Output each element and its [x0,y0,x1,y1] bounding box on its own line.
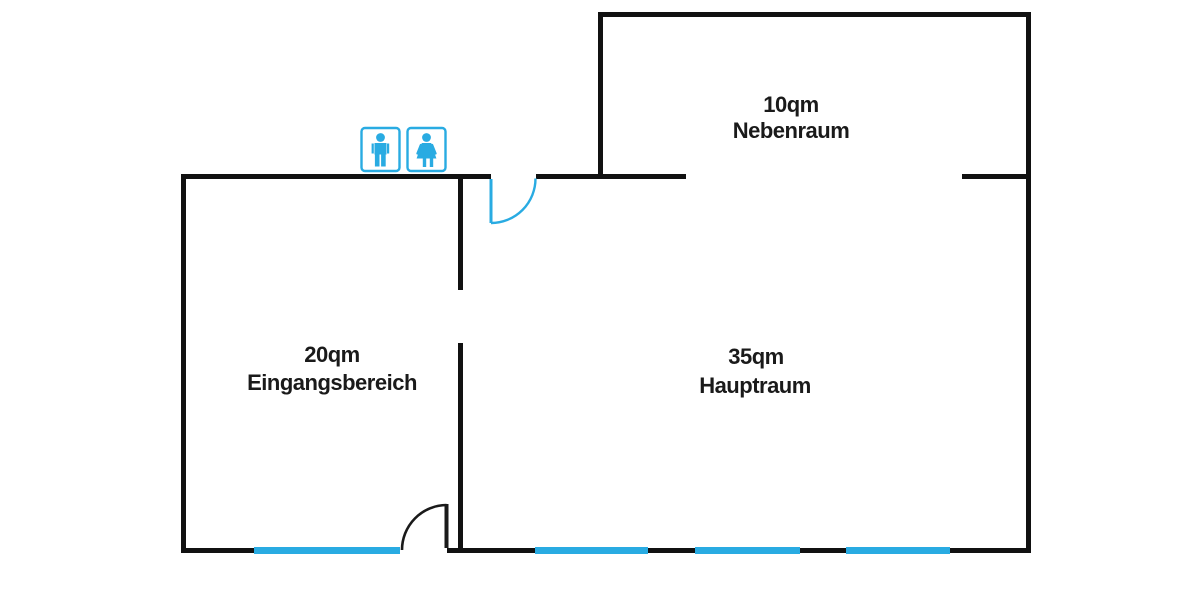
wall-bottom-segment-4 [800,548,846,553]
nebenraum-name-label: Nebenraum [733,118,850,143]
hauptraum-window-3 [846,547,950,554]
wall-right [1026,12,1031,553]
floor-plan-svg: 10qm Nebenraum 20qm Eingangsbereich 35qm… [0,0,1200,600]
walls [181,12,1031,553]
entrance-door-bottom [402,504,447,550]
hauptraum-window-1 [535,547,648,554]
wall-interior-lower [458,343,463,553]
door-swing-arc [402,505,447,550]
wall-bottom-segment-1 [181,548,254,553]
eingangsbereich-window [254,547,400,554]
wall-top-mid-segment [536,174,686,179]
eingangsbereich-name-label: Eingangsbereich [247,370,417,395]
female-restroom-icon [408,128,446,171]
hauptraum-name-label: Hauptraum [699,373,811,398]
nebenraum-area-label: 10qm [763,92,818,117]
restroom-icons [362,128,446,171]
eingangsbereich-area-label: 20qm [304,342,359,367]
wall-bottom-segment-3 [648,548,695,553]
hauptraum-window-2 [695,547,800,554]
wall-left [181,174,186,553]
floor-plan: 10qm Nebenraum 20qm Eingangsbereich 35qm… [0,0,1200,600]
wall-nebenraum-left [598,12,603,179]
wall-bottom-segment-5 [950,548,1031,553]
wall-top-left-segment [181,174,491,179]
wall-nebenraum-top [598,12,1031,17]
room-labels: 10qm Nebenraum 20qm Eingangsbereich 35qm… [247,92,849,398]
wall-top-right-stub [962,174,1031,179]
interior-door-top [491,179,536,224]
door-swing-arc [491,179,536,224]
wall-interior-upper [458,174,463,290]
hauptraum-area-label: 35qm [728,344,783,369]
male-restroom-icon [362,128,400,171]
